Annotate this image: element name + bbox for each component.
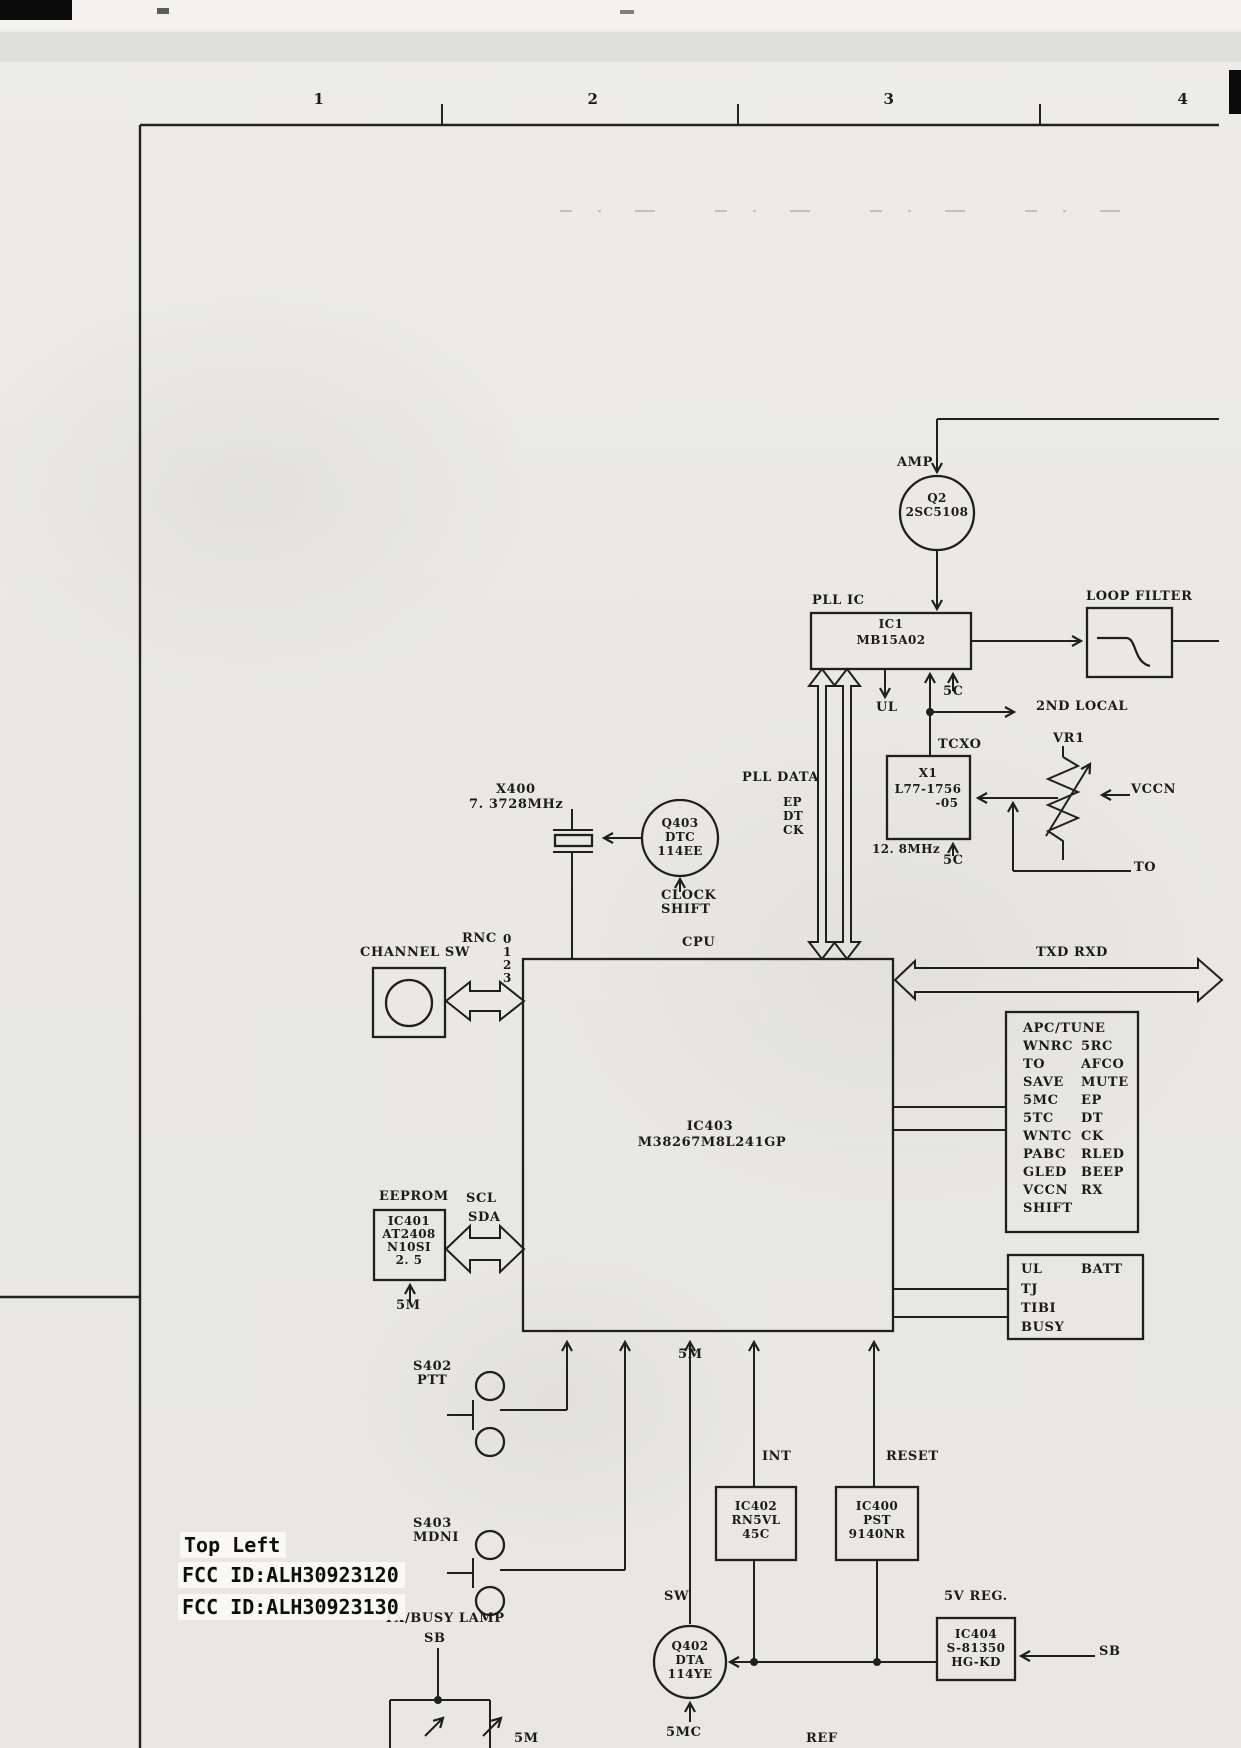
ic400-part-line2: 9140NR xyxy=(849,1528,906,1540)
annotation-fcc-id-1: FCC ID:ALH30923120 xyxy=(178,1562,405,1588)
crystal-body xyxy=(555,835,592,846)
apc-tune-title: APC/TUNE xyxy=(1023,1022,1106,1035)
eeprom-label: EEPROM xyxy=(379,1190,449,1203)
cpu-5m-label: 5M xyxy=(678,1348,703,1361)
channel-sw-bus-arrow xyxy=(446,982,524,1020)
channel-sw-knob xyxy=(386,980,432,1026)
shift-label: SHIFT xyxy=(661,903,711,916)
ep-label: EP xyxy=(783,796,802,808)
mdni-label: MDNI xyxy=(413,1531,459,1544)
clock-label: CLOCK xyxy=(661,889,716,902)
eeprom-5m-label: 5M xyxy=(396,1299,421,1312)
ruler-mark-1: 1 xyxy=(313,92,324,107)
drawing-frame xyxy=(0,104,1219,1748)
moni-contact xyxy=(476,1531,504,1559)
arrow-wires xyxy=(410,419,1130,1736)
second-local-label: 2ND LOCAL xyxy=(1036,700,1128,713)
lamp-sb-label: SB xyxy=(424,1632,446,1645)
cpu-label: CPU xyxy=(682,936,715,949)
ptt-contact xyxy=(476,1372,504,1400)
apc-row-left: PABC xyxy=(1023,1148,1066,1161)
bit-0: 0 xyxy=(503,933,512,945)
pll-ic-label: PLL IC xyxy=(812,594,865,607)
eeprom-part-line3: 2. 5 xyxy=(396,1254,423,1266)
q403-part-line2: 114EE xyxy=(657,845,702,857)
txd-rxd-label: TXD RXD xyxy=(1036,946,1108,959)
rnc-label: RNC xyxy=(462,932,497,945)
dt-label: DT xyxy=(783,810,803,822)
ic404-ref: IC404 xyxy=(955,1628,997,1640)
apc-row-right: 5RC xyxy=(1081,1040,1113,1053)
eeprom-bus-arrow xyxy=(446,1226,524,1272)
tcxo-freq-label: 12. 8MHz xyxy=(872,843,940,855)
apc-row-right: DT xyxy=(1081,1112,1103,1125)
vr1-label: VR1 xyxy=(1053,732,1085,745)
apc-row-right: RX xyxy=(1081,1184,1103,1197)
status-busy: BUSY xyxy=(1021,1321,1064,1334)
channel-sw-label: CHANNEL SW xyxy=(360,946,470,959)
q403-part-line1: DTC xyxy=(665,831,695,843)
apc-row-left: VCCN xyxy=(1023,1184,1068,1197)
ptt-label: PTT xyxy=(417,1374,447,1387)
bottom-5m-label: 5M xyxy=(514,1732,539,1745)
int-label: INT xyxy=(762,1450,791,1463)
annotation-position: Top Left xyxy=(180,1532,286,1558)
status-tibi: TIBI xyxy=(1021,1302,1056,1315)
reset-label: RESET xyxy=(886,1450,939,1463)
tcxo-label: TCXO xyxy=(938,738,982,751)
ic402-part-line1: RN5VL xyxy=(731,1514,780,1526)
sda-label: SDA xyxy=(468,1211,501,1224)
ref-label: REF xyxy=(806,1732,838,1745)
ic404-part-line2: HG-KD xyxy=(951,1656,1001,1668)
s403-ref: S403 xyxy=(413,1517,452,1530)
apc-row-left: 5TC xyxy=(1023,1112,1054,1125)
to-label: TO xyxy=(1134,861,1156,874)
amp-ref: Q2 xyxy=(927,492,947,504)
apc-row-left: SAVE xyxy=(1023,1076,1064,1089)
q403-ref: Q403 xyxy=(661,817,698,829)
apc-row-right: MUTE xyxy=(1081,1076,1129,1089)
apc-row-right: AFCO xyxy=(1081,1058,1124,1071)
eeprom-ref: IC401 xyxy=(388,1215,430,1227)
bit-2: 2 xyxy=(503,959,512,971)
xtal-freq: 7. 3728MHz xyxy=(469,798,563,811)
pll-ic-part: MB15A02 xyxy=(857,634,926,646)
ic402-ref: IC402 xyxy=(735,1500,777,1512)
tcxo-part-line2: -05 xyxy=(936,797,959,809)
apc-row-right: BEEP xyxy=(1081,1166,1124,1179)
scl-label: SCL xyxy=(466,1192,497,1205)
ptt-contact xyxy=(476,1428,504,1456)
pll-data-label: PLL DATA xyxy=(742,771,819,784)
ul-signal-label: UL xyxy=(876,701,898,714)
vr1-resistor-zigzag xyxy=(1048,757,1078,848)
ic404-part-line1: S-81350 xyxy=(947,1642,1006,1654)
eeprom-part-line1: AT2408 xyxy=(382,1228,435,1240)
schematic-scan-page: 1 2 3 4 AMP Q2 2SC5108 PLL IC IC1 MB15A0… xyxy=(0,0,1241,1748)
apc-row-left: GLED xyxy=(1023,1166,1067,1179)
apc-row-right: RLED xyxy=(1081,1148,1125,1161)
apc-row-left: SHIFT xyxy=(1023,1202,1073,1215)
eeprom-part-line2: N10SI xyxy=(387,1241,431,1253)
ic400-ref: IC400 xyxy=(856,1500,898,1512)
vreg-sb-label: SB xyxy=(1099,1645,1121,1658)
apc-row-left: TO xyxy=(1023,1058,1045,1071)
pll-data-bus-arrow xyxy=(809,669,835,959)
vr1-wiper-arrow xyxy=(1046,764,1090,836)
ruler-mark-3: 3 xyxy=(883,92,894,107)
tcxo-5c-label: 5C xyxy=(943,854,964,867)
status-ul: UL xyxy=(1021,1263,1043,1276)
apc-row-right: EP xyxy=(1081,1094,1102,1107)
schematic-geometry xyxy=(0,0,1241,1748)
apc-row-left: WNRC xyxy=(1023,1040,1073,1053)
ruler-mark-4: 4 xyxy=(1177,92,1188,107)
status-batt: BATT xyxy=(1081,1263,1123,1276)
bit-3: 3 xyxy=(503,972,512,984)
ruler-mark-2: 2 xyxy=(587,92,598,107)
q402-part-line1: DTA xyxy=(675,1654,704,1666)
annotation-fcc-id-2: FCC ID:ALH30923130 xyxy=(178,1594,405,1620)
xtal-ref: X400 xyxy=(496,783,536,796)
5mc-label: 5MC xyxy=(666,1726,702,1739)
q402-ref: Q402 xyxy=(671,1640,708,1652)
ic400-part-line1: PST xyxy=(863,1514,891,1526)
cpu-ref: IC403 xyxy=(687,1120,734,1133)
tcxo-ref: X1 xyxy=(919,767,937,779)
sw-label: SW xyxy=(664,1590,689,1603)
loop-filter-label: LOOP FILTER xyxy=(1086,590,1192,603)
txd-rxd-bus-arrow xyxy=(895,959,1222,1001)
apc-row-left: WNTC xyxy=(1023,1130,1072,1143)
apc-row-left: 5MC xyxy=(1023,1094,1059,1107)
q402-part-line2: 114YE xyxy=(668,1668,713,1680)
amp-part: 2SC5108 xyxy=(906,506,969,518)
ic402-part-line2: 45C xyxy=(742,1528,769,1540)
loop-filter-box xyxy=(1087,608,1172,677)
s402-ref: S402 xyxy=(413,1360,452,1373)
status-tj: TJ xyxy=(1021,1283,1038,1296)
tcxo-part-line1: L77-1756 xyxy=(895,783,962,795)
amp-label: AMP xyxy=(897,456,933,469)
vccn-label: VCCN xyxy=(1131,783,1176,796)
apc-row-right: CK xyxy=(1081,1130,1104,1143)
cpu-part: M38267M8L241GP xyxy=(638,1136,787,1149)
bus-arrows xyxy=(446,669,1222,1272)
pll-ic-ref: IC1 xyxy=(879,618,904,630)
pll-data-bus-arrow xyxy=(834,669,860,959)
ck-label: CK xyxy=(783,824,804,836)
bit-1: 1 xyxy=(503,946,512,958)
vreg-label: 5V REG. xyxy=(944,1590,1008,1603)
5c-signal-label: 5C xyxy=(943,685,964,698)
loop-filter-curve xyxy=(1097,638,1150,666)
